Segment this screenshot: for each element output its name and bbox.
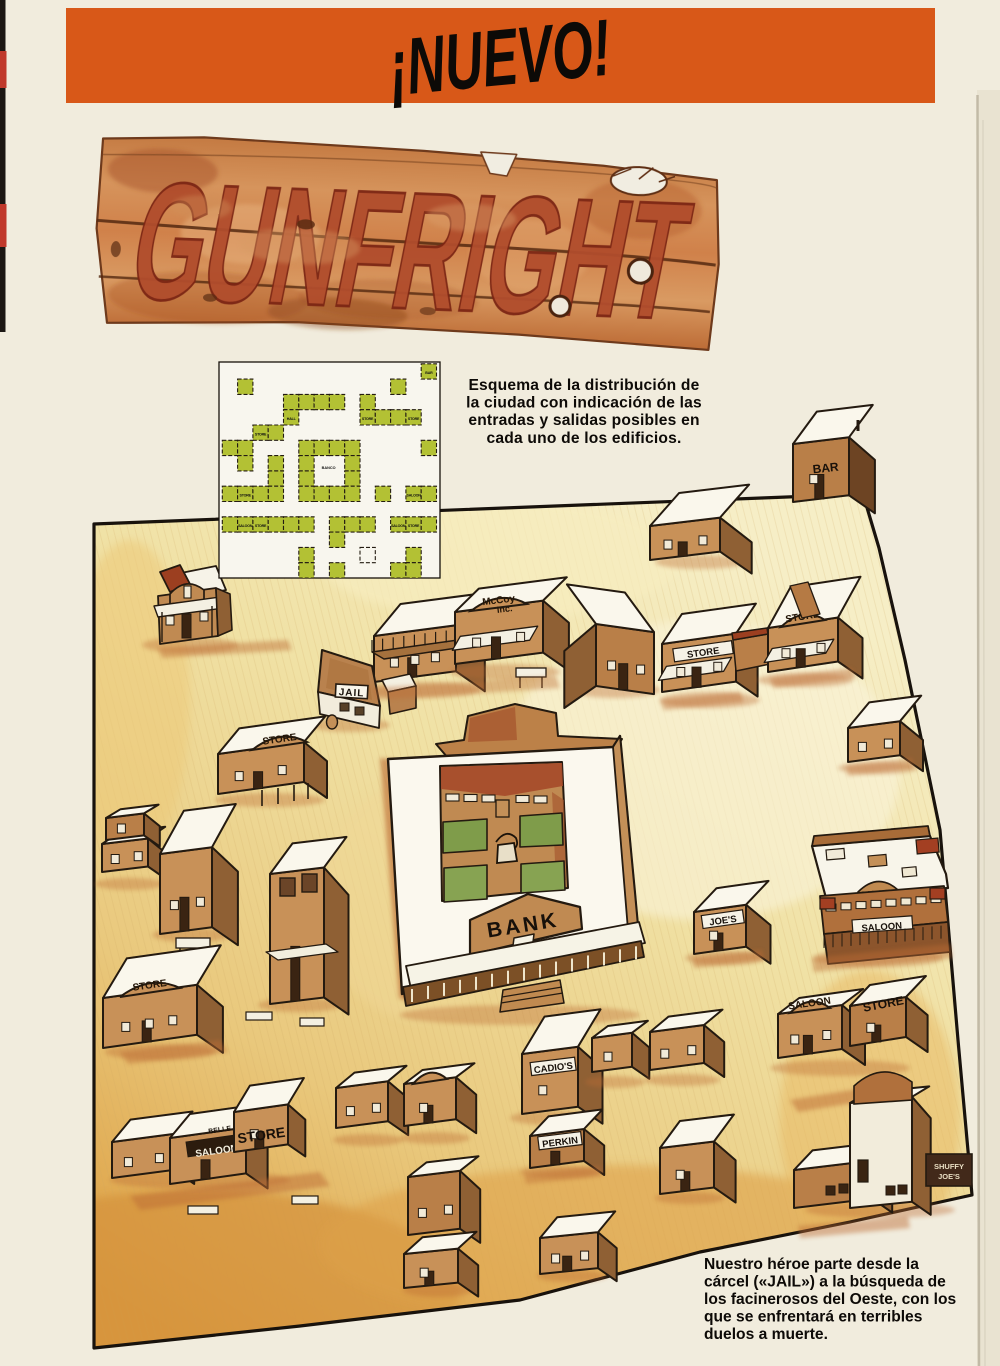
svg-text:SHUFFY: SHUFFY — [934, 1162, 964, 1171]
svg-text:HALL: HALL — [287, 417, 297, 421]
svg-text:STORE: STORE — [362, 417, 374, 421]
svg-text:duelos a muerte.: duelos a muerte. — [704, 1326, 828, 1343]
svg-text:SALOON: SALOON — [238, 524, 253, 528]
svg-text:BAR: BAR — [812, 460, 840, 477]
svg-text:que se enfrentará en terribles: que se enfrentará en terribles — [704, 1309, 923, 1326]
svg-text:Nuestro héroe parte desde la: Nuestro héroe parte desde la — [704, 1256, 919, 1273]
svg-text:BANCO: BANCO — [322, 466, 336, 470]
svg-text:STORE: STORE — [255, 524, 267, 528]
svg-text:entradas y salidas posibles en: entradas y salidas posibles en — [468, 412, 699, 429]
svg-text:JOE'S: JOE'S — [938, 1172, 960, 1181]
svg-text:SALOON: SALOON — [407, 494, 422, 498]
svg-text:STORE: STORE — [255, 432, 267, 436]
svg-text:SALOON: SALOON — [391, 524, 406, 528]
svg-text:Inc.: Inc. — [496, 603, 513, 615]
svg-text:STORE: STORE — [240, 494, 252, 498]
svg-text:Esquema de la distribución de: Esquema de la distribución de — [468, 377, 699, 394]
svg-text:la ciudad con indicación de la: la ciudad con indicación de las — [466, 395, 702, 412]
svg-text:STORE: STORE — [408, 417, 420, 421]
svg-text:BAR: BAR — [425, 371, 433, 375]
svg-text:JAIL: JAIL — [338, 687, 364, 699]
svg-text:los facinerosos del Oeste, con: los facinerosos del Oeste, con los — [704, 1291, 957, 1308]
svg-text:STORE: STORE — [408, 524, 420, 528]
svg-text:cárcel («JAIL») a la búsqueda: cárcel («JAIL») a la búsqueda de — [704, 1274, 946, 1291]
svg-text:cada uno de los edificios.: cada uno de los edificios. — [487, 430, 682, 447]
